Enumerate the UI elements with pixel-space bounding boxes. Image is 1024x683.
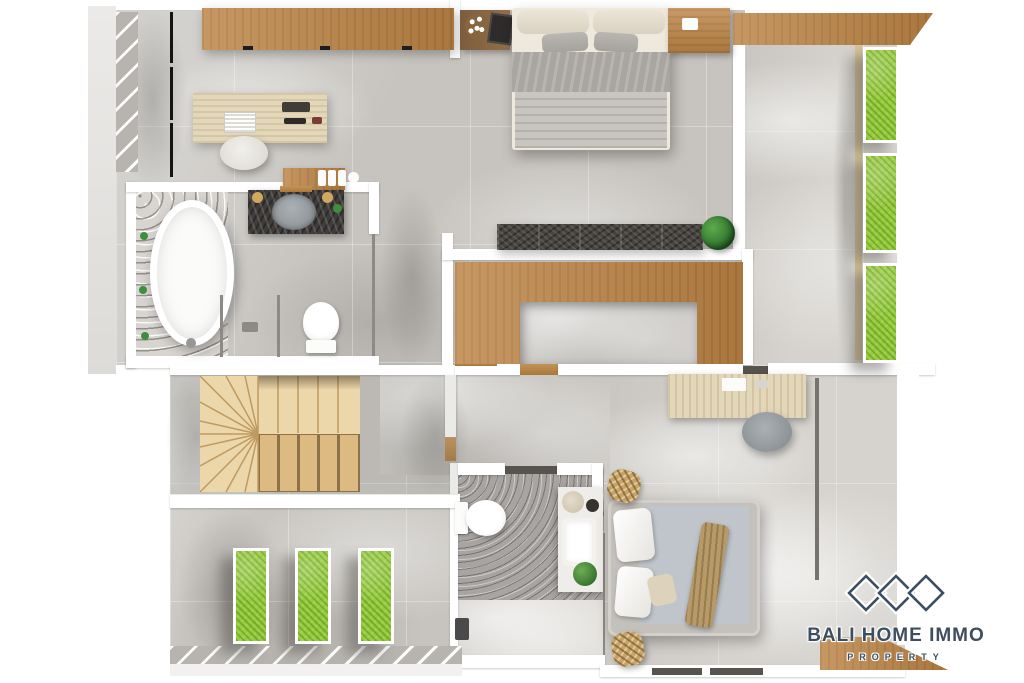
roof-edge-top	[733, 13, 933, 45]
laptop	[224, 112, 256, 133]
wood-tray	[280, 186, 312, 192]
towel-stack	[338, 170, 346, 186]
pillow	[612, 507, 655, 563]
gbath-divider	[603, 533, 605, 663]
wall-mid-stairs	[170, 365, 455, 375]
planter-greenery	[298, 551, 328, 641]
duvet	[515, 92, 667, 148]
floor-guest-bathroom-lower	[452, 600, 604, 660]
floor-shade	[176, 510, 286, 660]
planter-box	[233, 548, 269, 644]
desk-accessory	[284, 118, 306, 124]
toilet-base	[306, 340, 336, 353]
round-dish	[348, 172, 359, 183]
plant-sprig	[333, 204, 342, 213]
wardrobe	[202, 8, 454, 50]
floor-shade	[380, 185, 444, 365]
wall-bathroom-right	[369, 182, 379, 234]
round-mirror	[586, 499, 599, 512]
wardrobe-handle	[320, 46, 330, 50]
shower-glass	[220, 295, 223, 357]
door-sill-dark	[710, 668, 763, 675]
towel-stack	[328, 170, 336, 186]
wall-gbath-top-a	[458, 463, 505, 475]
brand-tagline: PROPERTY	[798, 652, 994, 662]
brass-accessory	[322, 192, 333, 203]
brass-accessory	[252, 192, 263, 203]
door-sill-dark	[743, 366, 768, 374]
papers	[722, 378, 746, 391]
pillow	[614, 566, 654, 619]
planter-box	[295, 548, 331, 644]
plant-sprig	[139, 286, 147, 294]
potted-plant	[573, 562, 597, 586]
book	[682, 18, 698, 30]
potted-plant	[701, 216, 735, 250]
wardrobe-handle	[402, 46, 412, 50]
window-frame	[170, 123, 173, 177]
planter-box	[358, 548, 394, 644]
planter-greenery	[361, 551, 391, 641]
door-sill-wood	[520, 363, 558, 375]
bottom-hatch-strip	[170, 646, 462, 664]
planter-box	[863, 263, 899, 363]
wall-bathroom-left	[126, 182, 136, 368]
planter-greenery	[866, 50, 896, 140]
shower-glass	[277, 295, 280, 357]
glass-partition	[815, 378, 819, 580]
window-frame	[170, 12, 173, 63]
brand-diamonds-icon	[821, 563, 971, 625]
planter-greenery	[866, 266, 896, 360]
brand-name: BALI HOME IMMO	[798, 625, 994, 647]
floor-plan: BALI HOME IMMO PROPERTY	[0, 0, 1024, 683]
wall-void-right	[742, 249, 753, 365]
planter-greenery	[236, 551, 266, 641]
door-sill-dark	[505, 466, 557, 474]
wall-bedroom-terrace	[733, 13, 745, 250]
bottom-edge	[170, 664, 462, 676]
planter-box	[863, 153, 899, 253]
blanket-fold	[512, 52, 670, 92]
vanity-sink	[272, 194, 316, 230]
left-balcony-edge	[88, 6, 116, 374]
desk-chair	[220, 136, 268, 170]
monitor	[282, 102, 310, 112]
rect-sink	[562, 518, 596, 566]
shower-glass-right	[372, 234, 375, 359]
toilet	[466, 500, 506, 536]
work-desk	[193, 93, 327, 143]
flower-vase	[465, 14, 489, 40]
master-bed	[512, 8, 670, 150]
tray	[487, 12, 515, 45]
left-hatch-strip	[116, 12, 138, 172]
void-inner-floor	[520, 302, 697, 364]
wall-terrace-top	[170, 494, 460, 508]
wall-right-top	[897, 30, 923, 365]
plant-sprig	[141, 332, 149, 340]
wall-gbath-bottom	[450, 655, 605, 668]
pillow	[541, 31, 588, 53]
plant-sprig	[140, 232, 148, 240]
towel-stack	[318, 170, 326, 186]
planter-greenery	[866, 156, 896, 250]
shower-fitting	[455, 618, 469, 640]
door-sill-dark	[652, 668, 702, 675]
desk-chair	[742, 412, 792, 452]
shower-control	[242, 322, 258, 332]
headboard-cushion	[517, 10, 589, 34]
deck-strip	[855, 45, 862, 360]
wardrobe-handle	[243, 46, 253, 50]
tub-faucet	[186, 338, 196, 348]
desk-accessory	[312, 117, 322, 124]
pillow	[593, 31, 638, 53]
headboard-cushion	[593, 10, 665, 34]
guest-bed	[608, 500, 760, 636]
wooden-winder-stairs	[200, 376, 416, 492]
floor-shade	[833, 45, 857, 360]
stone-console	[497, 224, 703, 250]
toilet	[303, 302, 339, 342]
brand-watermark: BALI HOME IMMO PROPERTY	[798, 563, 994, 662]
wall-void-top	[442, 249, 753, 260]
nightstand-right	[668, 8, 730, 53]
planter-box	[863, 47, 899, 143]
desk-accessory	[755, 380, 769, 388]
window-frame	[170, 67, 173, 120]
towel-bowl	[562, 491, 584, 513]
